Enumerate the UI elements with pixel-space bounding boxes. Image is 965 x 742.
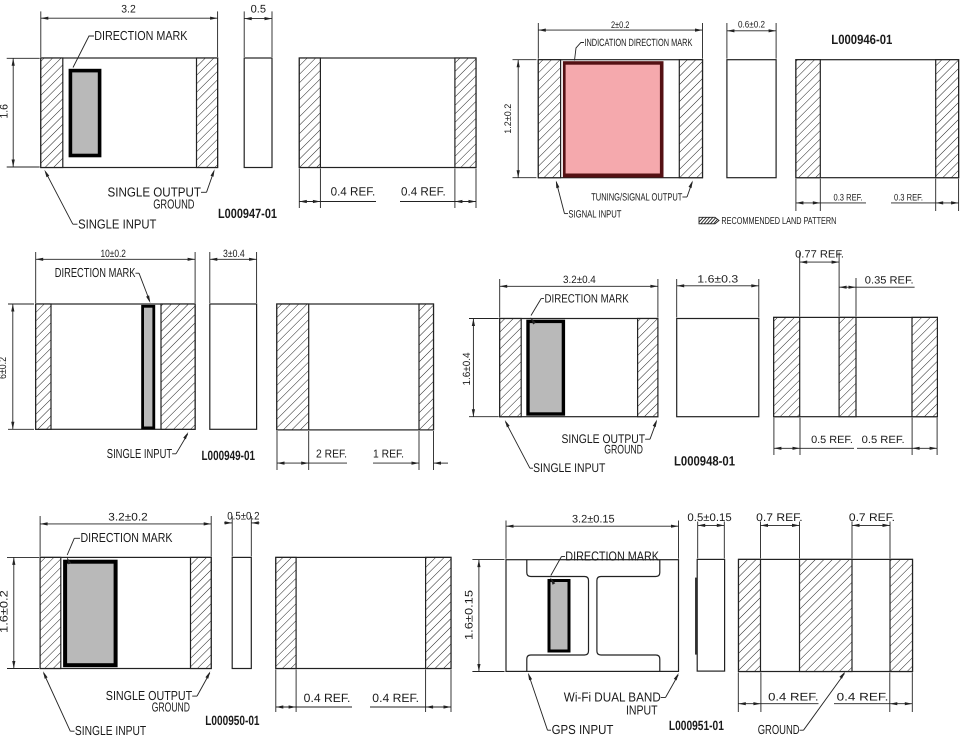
svg-text:3.2±0.15: 3.2±0.15	[572, 514, 615, 526]
svg-text:GROUND: GROUND	[152, 700, 190, 715]
svg-text:SINGLE INPUT: SINGLE INPUT	[75, 723, 146, 737]
svg-text:0.5±0.15: 0.5±0.15	[687, 512, 731, 524]
svg-text:DIRECTION MARK: DIRECTION MARK	[55, 265, 136, 280]
svg-text:0.3 REF.: 0.3 REF.	[894, 193, 923, 204]
svg-text:L000948-01: L000948-01	[674, 454, 735, 469]
svg-text:L000947-01: L000947-01	[218, 206, 277, 221]
svg-text:INPUT: INPUT	[626, 703, 658, 718]
svg-text:0.77 REF.: 0.77 REF.	[795, 249, 844, 261]
svg-text:0.35 REF.: 0.35 REF.	[865, 275, 914, 287]
svg-text:1 REF.: 1 REF.	[373, 449, 404, 461]
svg-text:0.5 REF.: 0.5 REF.	[862, 434, 905, 446]
svg-text:3.2±0.2: 3.2±0.2	[108, 511, 147, 523]
svg-text:1.6±0.3: 1.6±0.3	[697, 274, 738, 286]
svg-text:0.7 REF.: 0.7 REF.	[849, 512, 895, 524]
svg-text:1.2±0.2: 1.2±0.2	[503, 104, 514, 134]
svg-text:DIRECTION MARK: DIRECTION MARK	[545, 291, 629, 305]
svg-text:10±0.2: 10±0.2	[100, 248, 126, 260]
svg-text:0.4 REF.: 0.4 REF.	[304, 691, 351, 705]
svg-text:SIGNAL INPUT: SIGNAL INPUT	[568, 208, 622, 220]
svg-text:GROUND: GROUND	[758, 722, 800, 737]
svg-text:0.7 REF.: 0.7 REF.	[756, 512, 802, 524]
svg-text:GROUND: GROUND	[604, 443, 643, 457]
svg-text:SINGLE INPUT: SINGLE INPUT	[78, 216, 156, 231]
svg-text:DIRECTION MARK: DIRECTION MARK	[565, 548, 659, 563]
svg-text:SINGLE INPUT: SINGLE INPUT	[533, 461, 606, 475]
svg-text:1.6±0.4: 1.6±0.4	[461, 352, 473, 385]
svg-text:TUNING/SIGNAL OUTPUT: TUNING/SIGNAL OUTPUT	[591, 192, 683, 204]
svg-text:0.5: 0.5	[251, 4, 266, 16]
svg-text:0.4 REF.: 0.4 REF.	[331, 184, 376, 198]
svg-text:0.5 REF.: 0.5 REF.	[811, 434, 853, 446]
svg-text:1.6±0.15: 1.6±0.15	[464, 590, 476, 640]
svg-text:0.6±0.2: 0.6±0.2	[738, 20, 765, 31]
svg-text:SINGLE INPUT: SINGLE INPUT	[107, 446, 172, 461]
svg-text:3±0.4: 3±0.4	[223, 248, 245, 260]
svg-text:0.4 REF.: 0.4 REF.	[401, 184, 446, 198]
svg-text:0.3 REF.: 0.3 REF.	[834, 193, 863, 204]
svg-text:L000946-01: L000946-01	[831, 32, 892, 47]
svg-text:GPS INPUT: GPS INPUT	[552, 722, 614, 737]
svg-text:2 REF.: 2 REF.	[316, 449, 347, 461]
svg-text:3.2: 3.2	[121, 4, 136, 16]
svg-text:0.4 REF.: 0.4 REF.	[837, 692, 889, 704]
svg-text:0.4 REF.: 0.4 REF.	[768, 692, 818, 704]
svg-text:0.4 REF.: 0.4 REF.	[372, 691, 419, 705]
svg-text:L000949-01: L000949-01	[202, 448, 256, 463]
svg-text:6±0.2: 6±0.2	[0, 357, 9, 379]
svg-text:0.5±0.2: 0.5±0.2	[227, 510, 259, 522]
svg-text:1.6: 1.6	[0, 104, 11, 119]
svg-text:DIRECTION MARK: DIRECTION MARK	[94, 28, 188, 43]
svg-text:INDICATION DIRECTION MARK: INDICATION DIRECTION MARK	[584, 37, 692, 49]
svg-text:DIRECTION MARK: DIRECTION MARK	[81, 530, 173, 545]
svg-text:3.2±0.4: 3.2±0.4	[563, 274, 596, 286]
svg-text:L000950-01: L000950-01	[205, 713, 260, 728]
svg-text:2±0.2: 2±0.2	[611, 20, 630, 31]
svg-text:L000951-01: L000951-01	[669, 718, 724, 733]
svg-text:RECOMMENDED LAND PATTERN: RECOMMENDED LAND PATTERN	[721, 216, 836, 227]
svg-text:1.6±0.2: 1.6±0.2	[0, 590, 11, 633]
svg-text:GROUND: GROUND	[153, 196, 194, 211]
